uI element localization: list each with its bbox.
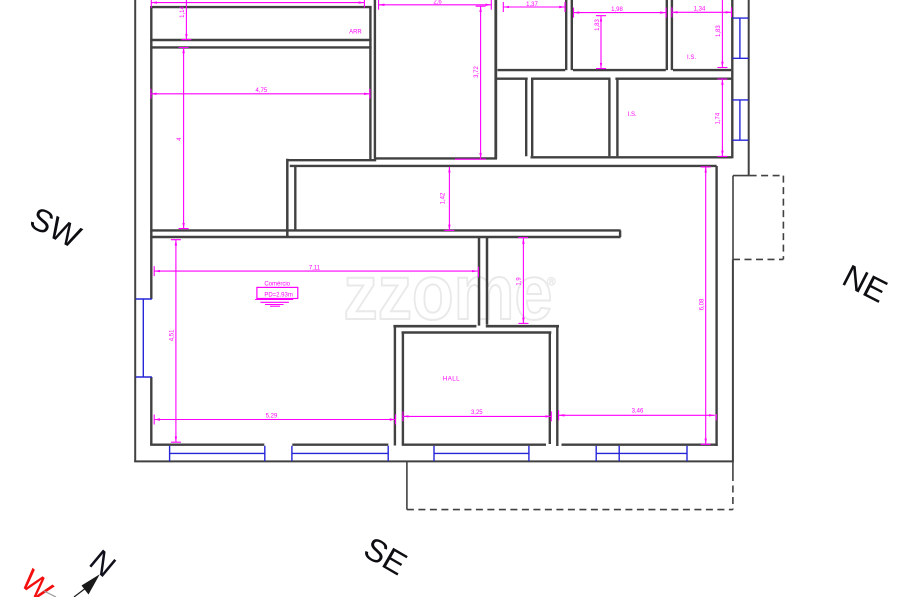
svg-text:I.S.: I.S.: [687, 55, 696, 61]
svg-text:HALL: HALL: [443, 376, 460, 383]
svg-text:NE: NE: [837, 257, 893, 309]
svg-text:ARR: ARR: [349, 29, 362, 35]
svg-text:3,25: 3,25: [471, 410, 483, 416]
svg-text:3,46: 3,46: [632, 409, 644, 415]
svg-text:4: 4: [177, 137, 183, 141]
svg-text:W: W: [14, 563, 59, 597]
svg-text:2,6: 2,6: [433, 0, 442, 6]
svg-text:1,37: 1,37: [526, 2, 538, 8]
svg-text:1,83: 1,83: [716, 25, 722, 37]
svg-text:Comércio: Comércio: [264, 282, 290, 288]
svg-text:SE: SE: [358, 530, 413, 583]
svg-text:1,98: 1,98: [611, 7, 623, 13]
svg-text:5,29: 5,29: [266, 414, 278, 420]
svg-text:1,34: 1,34: [694, 7, 706, 13]
svg-text:1,42: 1,42: [440, 192, 446, 204]
svg-text:SW: SW: [24, 200, 87, 256]
svg-text:4,75: 4,75: [256, 88, 268, 94]
svg-text:7,11: 7,11: [309, 266, 321, 272]
svg-text:1,14: 1,14: [180, 6, 186, 18]
svg-text:3,72: 3,72: [474, 66, 480, 78]
svg-text:1,74: 1,74: [716, 112, 722, 124]
svg-text:1,83: 1,83: [595, 19, 601, 31]
svg-text:R: R: [549, 279, 554, 286]
svg-text:4,51: 4,51: [170, 329, 176, 341]
svg-text:zzome: zzome: [344, 248, 553, 336]
svg-text:I.S.: I.S.: [628, 112, 637, 118]
svg-text:N: N: [83, 543, 123, 584]
svg-text:6,08: 6,08: [700, 298, 706, 310]
svg-text:1,9: 1,9: [517, 277, 523, 286]
svg-text:PD=2.93m: PD=2.93m: [264, 292, 293, 298]
